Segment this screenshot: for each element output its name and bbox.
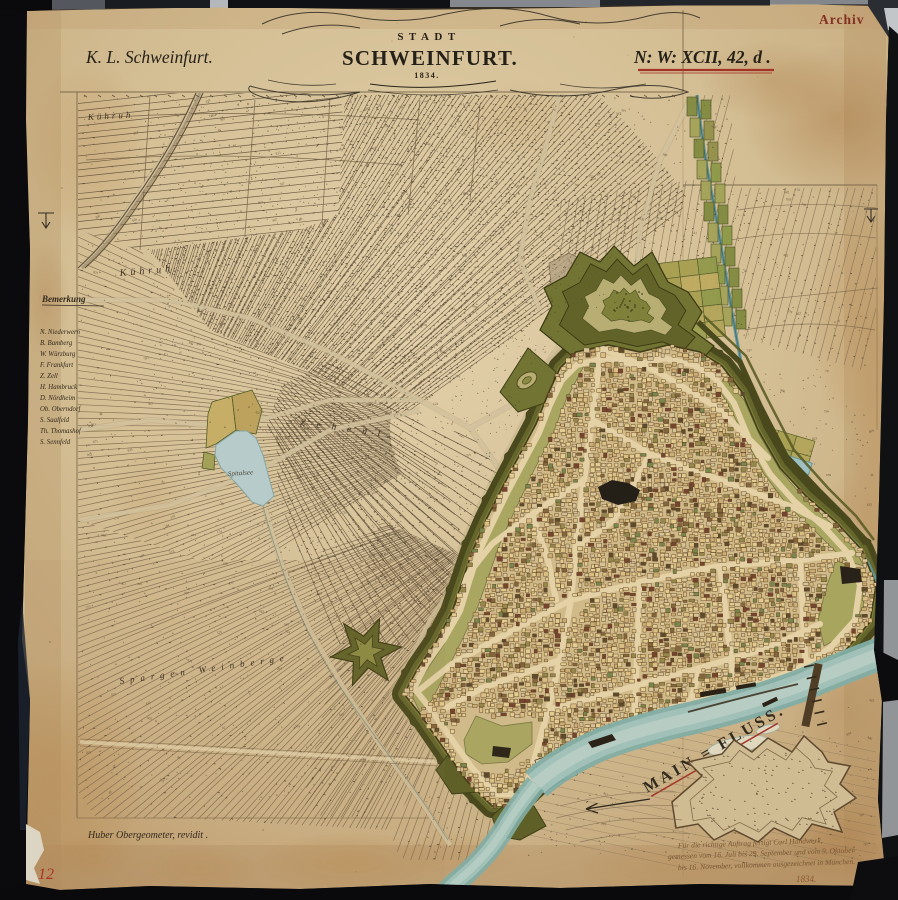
svg-text:1834.: 1834.	[414, 71, 440, 80]
svg-text:N. Niederwern: N. Niederwern	[39, 329, 81, 336]
svg-text:Z. Zell: Z. Zell	[40, 373, 58, 380]
svg-text:N: W: XCII, 42, d .: N: W: XCII, 42, d .	[633, 47, 771, 67]
svg-text:K. L. Schweinfurt.: K. L. Schweinfurt.	[85, 47, 213, 67]
svg-text:D. Nördheim: D. Nördheim	[39, 395, 75, 402]
svg-text:F. Frankfurt: F. Frankfurt	[39, 362, 74, 369]
svg-text:W. Würzburg: W. Würzburg	[40, 351, 76, 358]
svg-text:STADT: STADT	[397, 31, 460, 43]
svg-text:12: 12	[38, 866, 54, 883]
svg-text:Bemerkung: Bemerkung	[41, 294, 86, 304]
svg-text:H. Hambruck: H. Hambruck	[39, 384, 78, 391]
svg-text:Th. Thomashof: Th. Thomashof	[40, 428, 82, 435]
svg-text:Huber Obergeometer, revidit .: Huber Obergeometer, revidit .	[87, 830, 208, 841]
svg-text:SCHWEINFURT.: SCHWEINFURT.	[342, 46, 518, 70]
svg-text:1834.: 1834.	[796, 874, 816, 884]
svg-text:S. Sennfeld: S. Sennfeld	[40, 439, 71, 446]
svg-text:Archiv: Archiv	[819, 12, 865, 27]
svg-text:S. Saalfeld: S. Saalfeld	[40, 417, 70, 424]
svg-text:Ob. Oberndorf: Ob. Oberndorf	[40, 406, 82, 413]
svg-text:B. Bamberg: B. Bamberg	[40, 340, 73, 347]
